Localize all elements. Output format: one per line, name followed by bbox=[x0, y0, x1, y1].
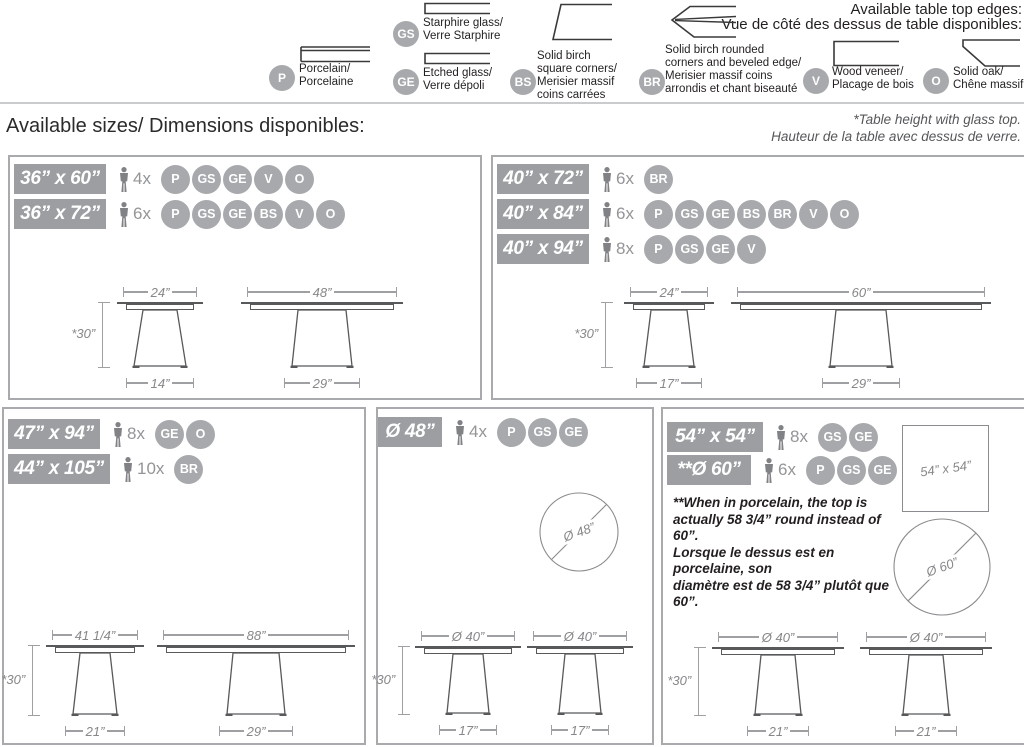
material-chips: PGSGE bbox=[806, 456, 897, 485]
person-icon bbox=[601, 167, 613, 192]
material-chip-v: V bbox=[254, 165, 283, 194]
legend-chip-GE: GE bbox=[393, 69, 419, 95]
legend-chip-V: V bbox=[803, 68, 829, 94]
material-chips: BR bbox=[174, 455, 203, 484]
person-icon bbox=[122, 457, 134, 482]
material-chips: PGSGEBSBRVO bbox=[644, 200, 859, 229]
height-dimension: *30” bbox=[698, 647, 699, 716]
seat-count: 4x bbox=[469, 422, 487, 442]
material-chip-gs: GS bbox=[837, 456, 866, 485]
square-top-outline: 54” x 54” bbox=[902, 425, 989, 512]
pedestal-base bbox=[442, 653, 494, 715]
legend-chip-O: O bbox=[923, 68, 949, 94]
size-row: Ø 48” 4x PGSGE bbox=[378, 417, 588, 447]
material-chips: PGSGEV bbox=[644, 235, 766, 264]
material-chip-ge: GE bbox=[223, 200, 252, 229]
person-icon bbox=[775, 425, 787, 450]
material-chip-o: O bbox=[316, 200, 345, 229]
size-badge: 40” x 84” bbox=[497, 199, 589, 229]
top-dimension: 24” bbox=[123, 284, 197, 300]
height-dimension: *30” bbox=[402, 646, 403, 715]
pedestal-base bbox=[68, 652, 122, 716]
material-chip-ge: GE bbox=[223, 165, 252, 194]
seat-count: 6x bbox=[616, 204, 634, 224]
material-chip-o: O bbox=[830, 200, 859, 229]
material-chip-ge: GE bbox=[849, 423, 878, 452]
table-side-view: Ø 40” 17” bbox=[413, 628, 523, 741]
edges-header-en: Available table top edges: bbox=[722, 2, 1022, 17]
top-dimension: 41 1/4” bbox=[52, 627, 138, 643]
material-chip-bs: BS bbox=[254, 200, 283, 229]
person-icon bbox=[775, 425, 787, 450]
material-chip-gs: GS bbox=[675, 235, 704, 264]
legend-label-birch-square: Solid birch square corners/ Merisier mas… bbox=[537, 50, 617, 102]
base-dimension: 17” bbox=[636, 375, 702, 391]
seat-count: 10x bbox=[137, 459, 164, 479]
size-badge: 54” x 54” bbox=[667, 422, 763, 452]
glass-edge-icon bbox=[424, 2, 490, 15]
legend-label-starphire: Starphire glass/ Verre Starphire bbox=[423, 17, 503, 43]
size-badge: **Ø 60” bbox=[667, 455, 751, 485]
pedestal-base bbox=[554, 653, 606, 715]
panel-54-60: 54” x 54” 8x GSGE **Ø 60” 6x PGSGE 54” x… bbox=[661, 407, 1024, 745]
footnote-en: *Table height with glass top. bbox=[771, 111, 1021, 128]
size-badge: 40” x 72” bbox=[497, 164, 589, 194]
seat-count: 8x bbox=[127, 424, 145, 444]
size-row: 40” x 84” 6x PGSGEBSBRVO bbox=[497, 199, 859, 229]
edges-header-fr: Vue de côté des dessus de table disponib… bbox=[722, 17, 1022, 32]
legend-label-porcelain: Porcelain/ Porcelaine bbox=[299, 63, 353, 89]
top-dimension: Ø 40” bbox=[718, 629, 838, 645]
person-icon bbox=[454, 420, 466, 445]
porcelain-edge-icon bbox=[300, 45, 370, 63]
base-dimension: 29” bbox=[822, 375, 900, 391]
base-dimension: 21” bbox=[747, 723, 809, 739]
size-row: 40” x 72” 6x BR bbox=[497, 164, 673, 194]
person-icon bbox=[122, 457, 134, 482]
seat-count: 8x bbox=[616, 239, 634, 259]
material-chip-p: P bbox=[644, 200, 673, 229]
material-chip-o: O bbox=[285, 165, 314, 194]
person-icon bbox=[601, 237, 613, 262]
height-dimension: *30” bbox=[605, 302, 606, 368]
pedestal-base bbox=[898, 654, 954, 716]
table-side-view: Ø 40” 21” bbox=[710, 629, 846, 742]
height-dimension: *30” bbox=[102, 302, 103, 368]
person-icon bbox=[118, 202, 130, 227]
seat-count: 4x bbox=[133, 169, 151, 189]
size-row: 44” x 105” 10x BR bbox=[8, 454, 203, 484]
base-dimension: 17” bbox=[551, 722, 609, 738]
oak-edge-icon bbox=[954, 38, 1020, 68]
table-side-view: 60” 29” bbox=[729, 284, 993, 394]
material-chips: GEO bbox=[155, 420, 215, 449]
person-icon bbox=[763, 458, 775, 483]
size-row: 36” x 60” 4x PGSGEVO bbox=[14, 164, 314, 194]
glass-top-footnote: *Table height with glass top. Hauteur de… bbox=[771, 111, 1021, 145]
material-chip-p: P bbox=[497, 418, 526, 447]
panel-40-inch: 40” x 72” 6x BR 40” x 84” 6x PGSGEBSBRVO… bbox=[491, 155, 1024, 400]
material-chip-gs: GS bbox=[818, 423, 847, 452]
height-dimension-label: *30” bbox=[571, 326, 601, 341]
glass-edge-icon bbox=[424, 52, 490, 65]
top-dimension: Ø 40” bbox=[866, 629, 986, 645]
material-chip-gs: GS bbox=[192, 200, 221, 229]
pedestal-base bbox=[222, 652, 290, 716]
person-icon bbox=[601, 237, 613, 262]
person-icon bbox=[601, 167, 613, 192]
material-chip-ge: GE bbox=[706, 235, 735, 264]
size-badge: 40” x 94” bbox=[497, 234, 589, 264]
person-icon bbox=[118, 167, 130, 192]
size-row: 40” x 94” 8x PGSGEV bbox=[497, 234, 766, 264]
sizes-title: Available sizes/ Dimensions disponibles: bbox=[6, 115, 365, 138]
pedestal-base bbox=[129, 309, 191, 368]
material-chip-p: P bbox=[161, 200, 190, 229]
base-dimension: 21” bbox=[65, 723, 125, 739]
material-chip-ge: GE bbox=[155, 420, 184, 449]
top-dimension: 24” bbox=[630, 284, 708, 300]
legend-chip-GS: GS bbox=[393, 21, 419, 47]
seat-count: 6x bbox=[133, 204, 151, 224]
spec-sheet-page: { "edges_header": { "line1": "Available … bbox=[0, 0, 1024, 747]
size-badge: 47” x 94” bbox=[8, 419, 100, 449]
height-dimension: *30” bbox=[32, 645, 33, 716]
person-icon bbox=[112, 422, 124, 447]
legend-label-oak: Solid oak/ Chêne massif bbox=[953, 66, 1023, 92]
legend-band: Available table top edges: Vue de côté d… bbox=[0, 0, 1024, 102]
material-chip-o: O bbox=[186, 420, 215, 449]
material-chips: BR bbox=[644, 165, 673, 194]
base-dimension: 29” bbox=[219, 723, 293, 739]
pedestal-base bbox=[639, 309, 699, 368]
pedestal-base bbox=[287, 309, 357, 368]
table-side-view: 24” 17” bbox=[622, 284, 716, 394]
person-icon bbox=[112, 422, 124, 447]
legend-chip-BS: BS bbox=[510, 69, 536, 95]
person-icon bbox=[454, 420, 466, 445]
size-row: 47” x 94” 8x GEO bbox=[8, 419, 215, 449]
material-chips: PGSGE bbox=[497, 418, 588, 447]
material-chip-br: BR bbox=[768, 200, 797, 229]
height-dimension-label: *30” bbox=[0, 672, 28, 687]
table-side-view: 24” 14” bbox=[115, 284, 205, 394]
table-side-view: 88” 29” bbox=[155, 627, 357, 742]
diameter-circle: Ø 48” bbox=[539, 492, 619, 572]
table-side-view: 48” 29” bbox=[239, 284, 405, 394]
edges-header: Available table top edges: Vue de côté d… bbox=[722, 2, 1022, 32]
material-chip-br: BR bbox=[174, 455, 203, 484]
square-top-label: 54” x 54” bbox=[919, 458, 972, 480]
material-chip-ge: GE bbox=[868, 456, 897, 485]
pedestal-base bbox=[825, 309, 897, 368]
legend-label-birch-rounded: Solid birch rounded corners and beveled … bbox=[665, 44, 801, 96]
table-side-view: Ø 40” 17” bbox=[525, 628, 635, 741]
height-dimension-label: *30” bbox=[664, 673, 694, 688]
top-dimension: 88” bbox=[163, 627, 349, 643]
material-chips: PGSGEVO bbox=[161, 165, 314, 194]
base-dimension: 29” bbox=[284, 375, 360, 391]
birch-rounded-edge-icon bbox=[668, 3, 736, 39]
person-icon bbox=[601, 202, 613, 227]
material-chip-ge: GE bbox=[706, 200, 735, 229]
material-chip-gs: GS bbox=[192, 165, 221, 194]
legend-chip-P: P bbox=[269, 65, 295, 91]
veneer-edge-icon bbox=[833, 40, 899, 67]
seat-count: 6x bbox=[616, 169, 634, 189]
material-chip-p: P bbox=[161, 165, 190, 194]
header-divider bbox=[0, 102, 1024, 104]
person-icon bbox=[601, 202, 613, 227]
size-row: 36” x 72” 6x PGSGEBSVO bbox=[14, 199, 345, 229]
size-row: 54” x 54” 8x GSGE bbox=[667, 422, 878, 452]
base-dimension: 21” bbox=[895, 723, 957, 739]
material-chip-v: V bbox=[285, 200, 314, 229]
size-row: **Ø 60” 6x PGSGE bbox=[667, 455, 897, 485]
panel-36-inch: 36” x 60” 4x PGSGEVO 36” x 72” 6x PGSGEB… bbox=[8, 155, 482, 400]
material-chip-br: BR bbox=[644, 165, 673, 194]
footnote-fr: Hauteur de la table avec dessus de verre… bbox=[771, 128, 1021, 145]
size-badge: 36” x 60” bbox=[14, 164, 106, 194]
seat-count: 6x bbox=[778, 460, 796, 480]
person-icon bbox=[118, 167, 130, 192]
person-icon bbox=[118, 202, 130, 227]
panel-47-44-inch: 47” x 94” 8x GEO 44” x 105” 10x BR 41 1/… bbox=[2, 407, 366, 745]
table-side-view: 41 1/4” 21” bbox=[44, 627, 146, 742]
pedestal-base bbox=[750, 654, 806, 716]
size-badge: 44” x 105” bbox=[8, 454, 110, 484]
panel-48-round: Ø 48” 4x PGSGE Ø 48” Ø 40” 17” Ø 40” 17”… bbox=[376, 407, 654, 745]
material-chip-v: V bbox=[799, 200, 828, 229]
material-chip-p: P bbox=[644, 235, 673, 264]
material-chips: PGSGEBSVO bbox=[161, 200, 345, 229]
top-dimension: 60” bbox=[737, 284, 985, 300]
birch-square-edge-icon bbox=[548, 3, 612, 41]
material-chip-p: P bbox=[806, 456, 835, 485]
person-icon bbox=[763, 458, 775, 483]
size-badge: Ø 48” bbox=[378, 417, 442, 447]
base-dimension: 17” bbox=[439, 722, 497, 738]
legend-label-etched: Etched glass/ Verre dépoli bbox=[423, 67, 492, 93]
top-dimension: Ø 40” bbox=[533, 628, 627, 644]
table-side-view: Ø 40” 21” bbox=[858, 629, 994, 742]
material-chip-gs: GS bbox=[675, 200, 704, 229]
base-dimension: 14” bbox=[126, 375, 194, 391]
seat-count: 8x bbox=[790, 427, 808, 447]
material-chip-v: V bbox=[737, 235, 766, 264]
top-dimension: 48” bbox=[247, 284, 397, 300]
material-chip-ge: GE bbox=[559, 418, 588, 447]
size-badge: 36” x 72” bbox=[14, 199, 106, 229]
porcelain-note: **When in porcelain, the top is actually… bbox=[673, 495, 908, 611]
top-dimension: Ø 40” bbox=[421, 628, 515, 644]
height-dimension-label: *30” bbox=[68, 326, 98, 341]
material-chip-gs: GS bbox=[528, 418, 557, 447]
material-chip-bs: BS bbox=[737, 200, 766, 229]
material-chips: GSGE bbox=[818, 423, 878, 452]
legend-chip-BR: BR bbox=[639, 69, 665, 95]
legend-label-veneer: Wood veneer/ Placage de bois bbox=[832, 66, 914, 92]
height-dimension-label: *30” bbox=[368, 672, 398, 687]
